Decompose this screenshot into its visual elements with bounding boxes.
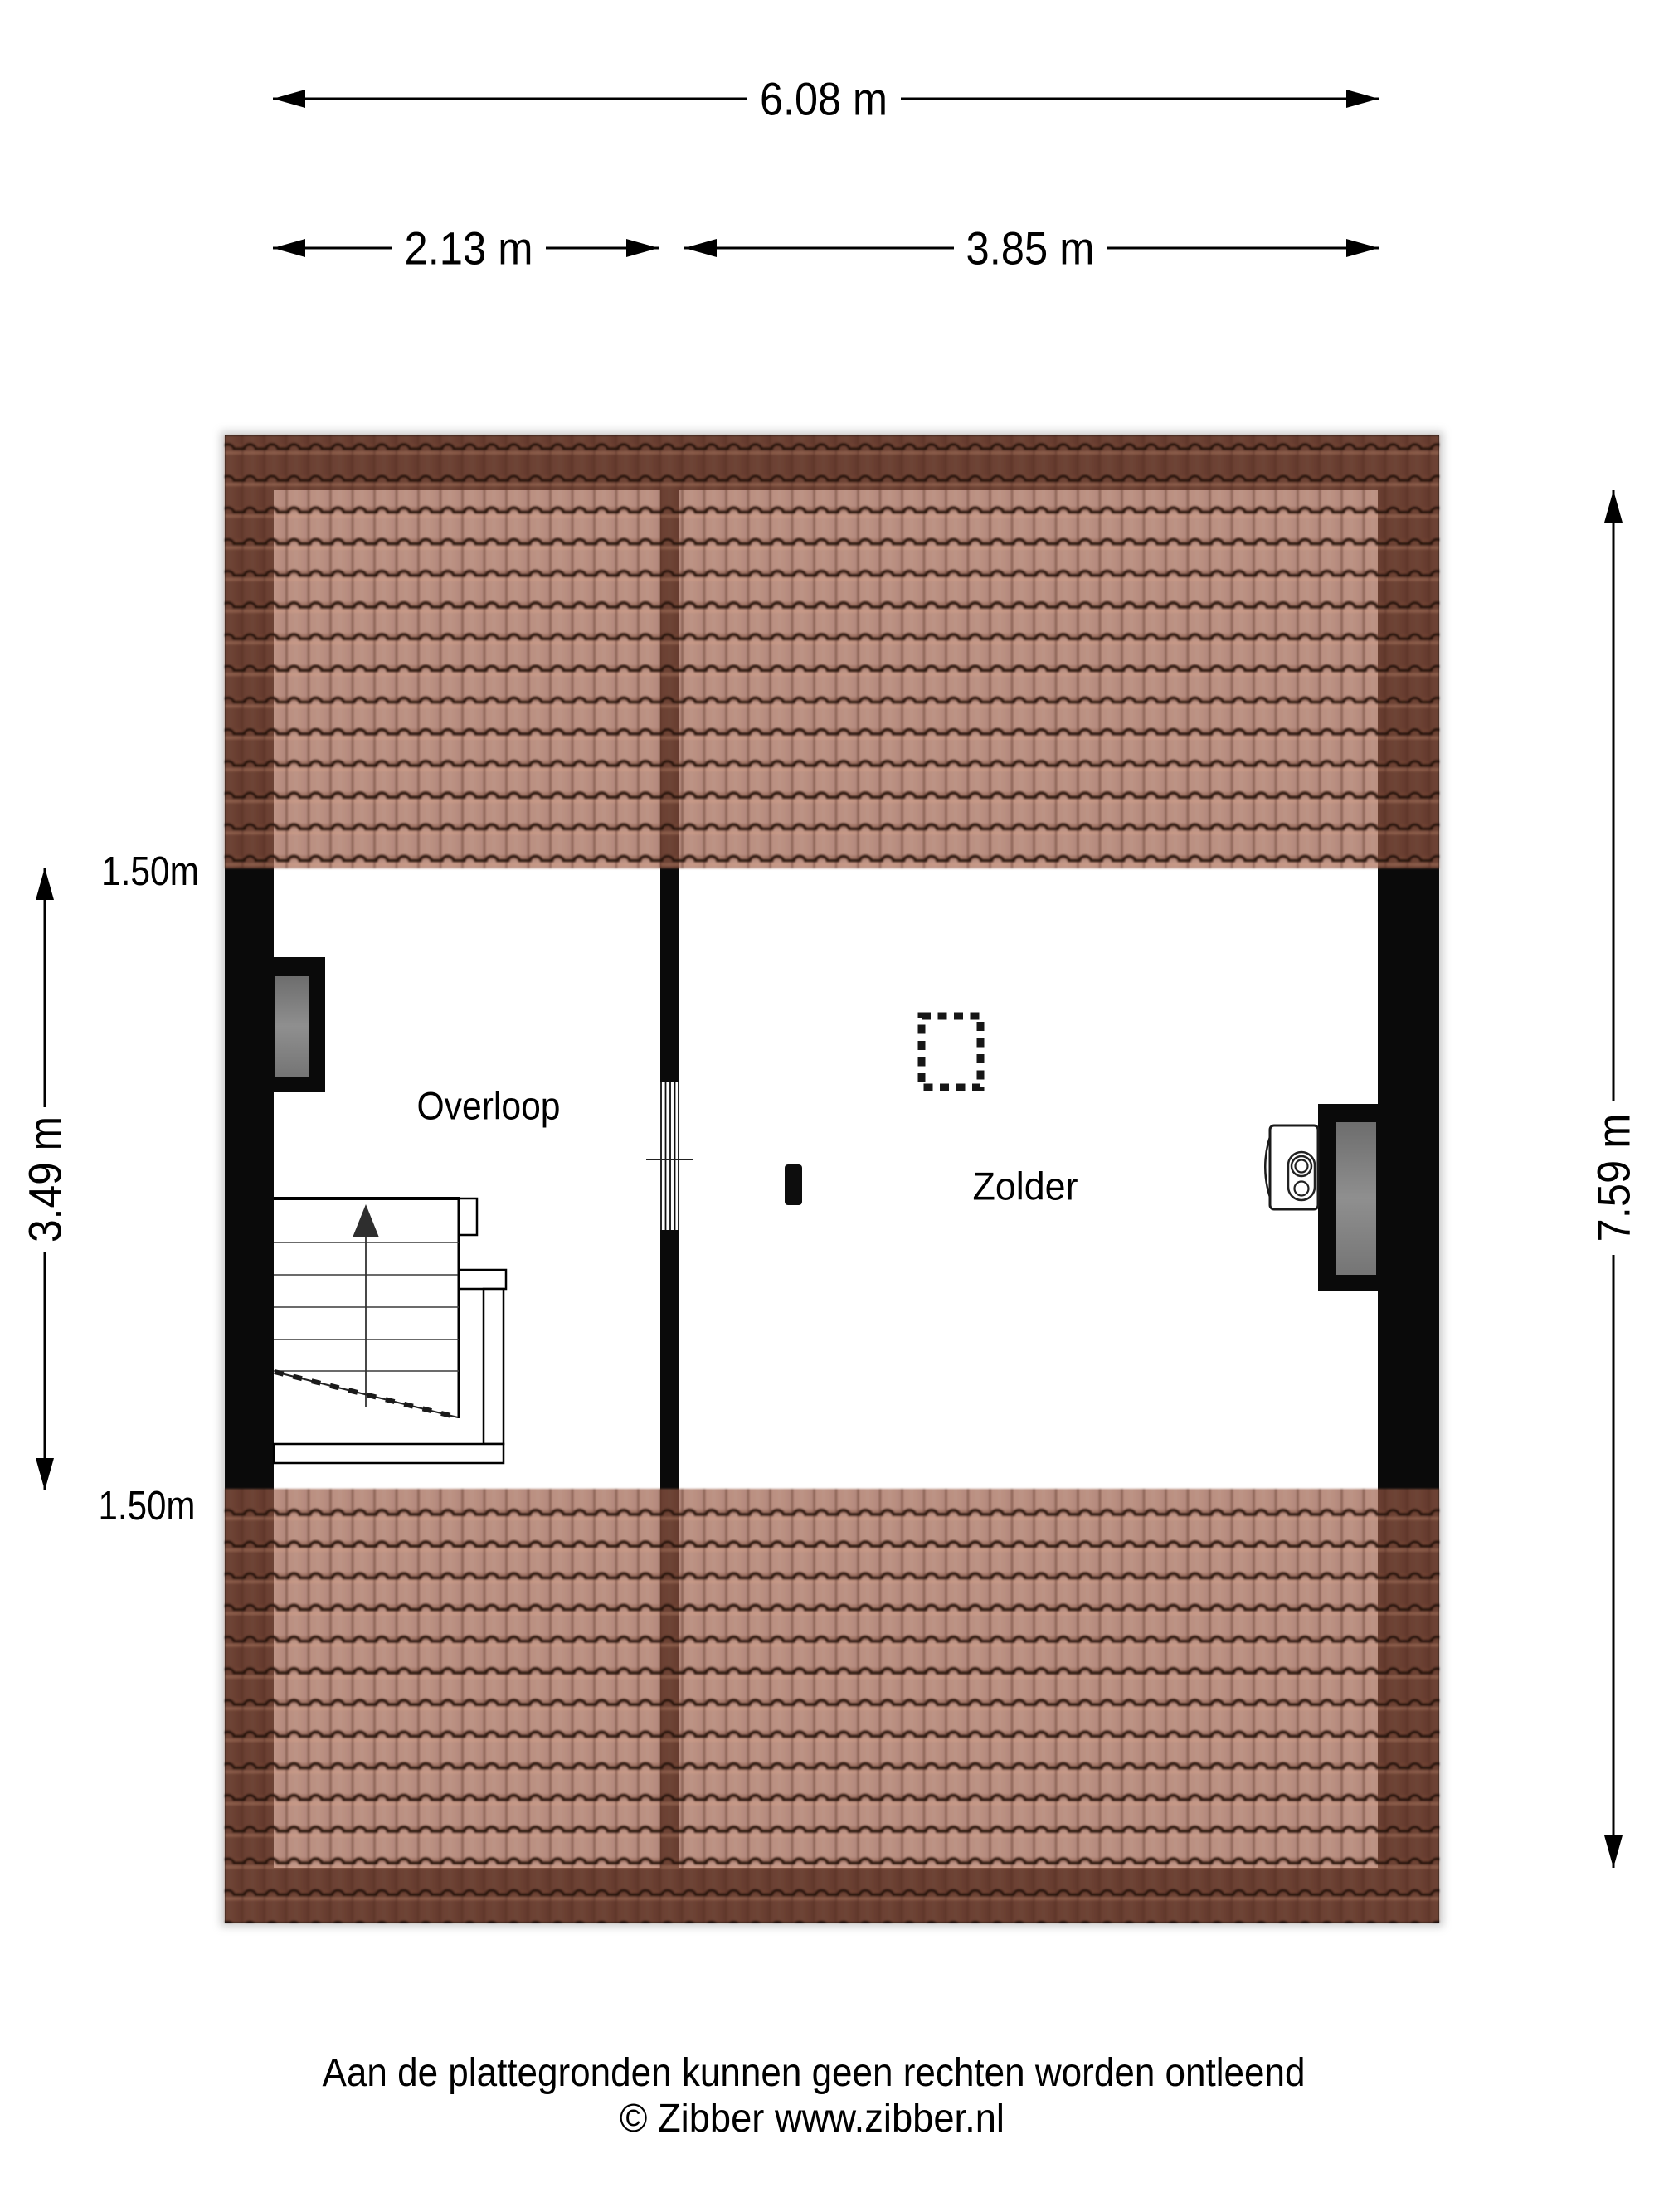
svg-text:1.50m: 1.50m (99, 1484, 196, 1529)
svg-text:7.59 m: 7.59 m (1588, 1114, 1640, 1242)
svg-text:3.85 m: 3.85 m (966, 222, 1095, 275)
svg-text:1.50m: 1.50m (101, 849, 199, 894)
svg-text:Overloop: Overloop (417, 1084, 561, 1128)
svg-text:3.49 m: 3.49 m (19, 1116, 71, 1242)
svg-text:Zolder: Zolder (973, 1164, 1078, 1208)
svg-text:2.13 m: 2.13 m (405, 222, 533, 275)
svg-text:6.08 m: 6.08 m (760, 73, 888, 125)
svg-text:Aan de plattegronden kunnen ge: Aan de plattegronden kunnen geen rechten… (323, 2051, 1306, 2095)
svg-text:© Zibber www.zibber.nl: © Zibber www.zibber.nl (620, 2097, 1005, 2141)
